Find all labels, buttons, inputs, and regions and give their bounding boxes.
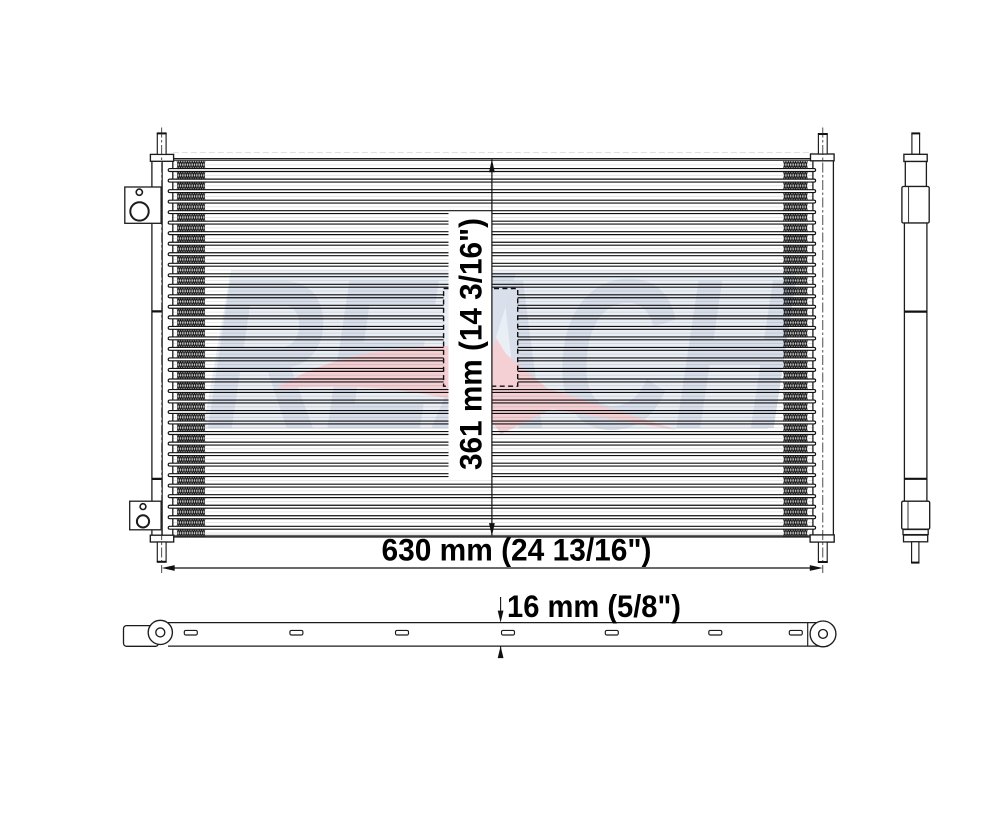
svg-text:16 mm (5/8"): 16 mm (5/8") xyxy=(507,588,681,624)
svg-text:630 mm (24 13/16"): 630 mm (24 13/16") xyxy=(382,532,652,568)
svg-text:361 mm (14 3/16"): 361 mm (14 3/16") xyxy=(453,218,489,470)
